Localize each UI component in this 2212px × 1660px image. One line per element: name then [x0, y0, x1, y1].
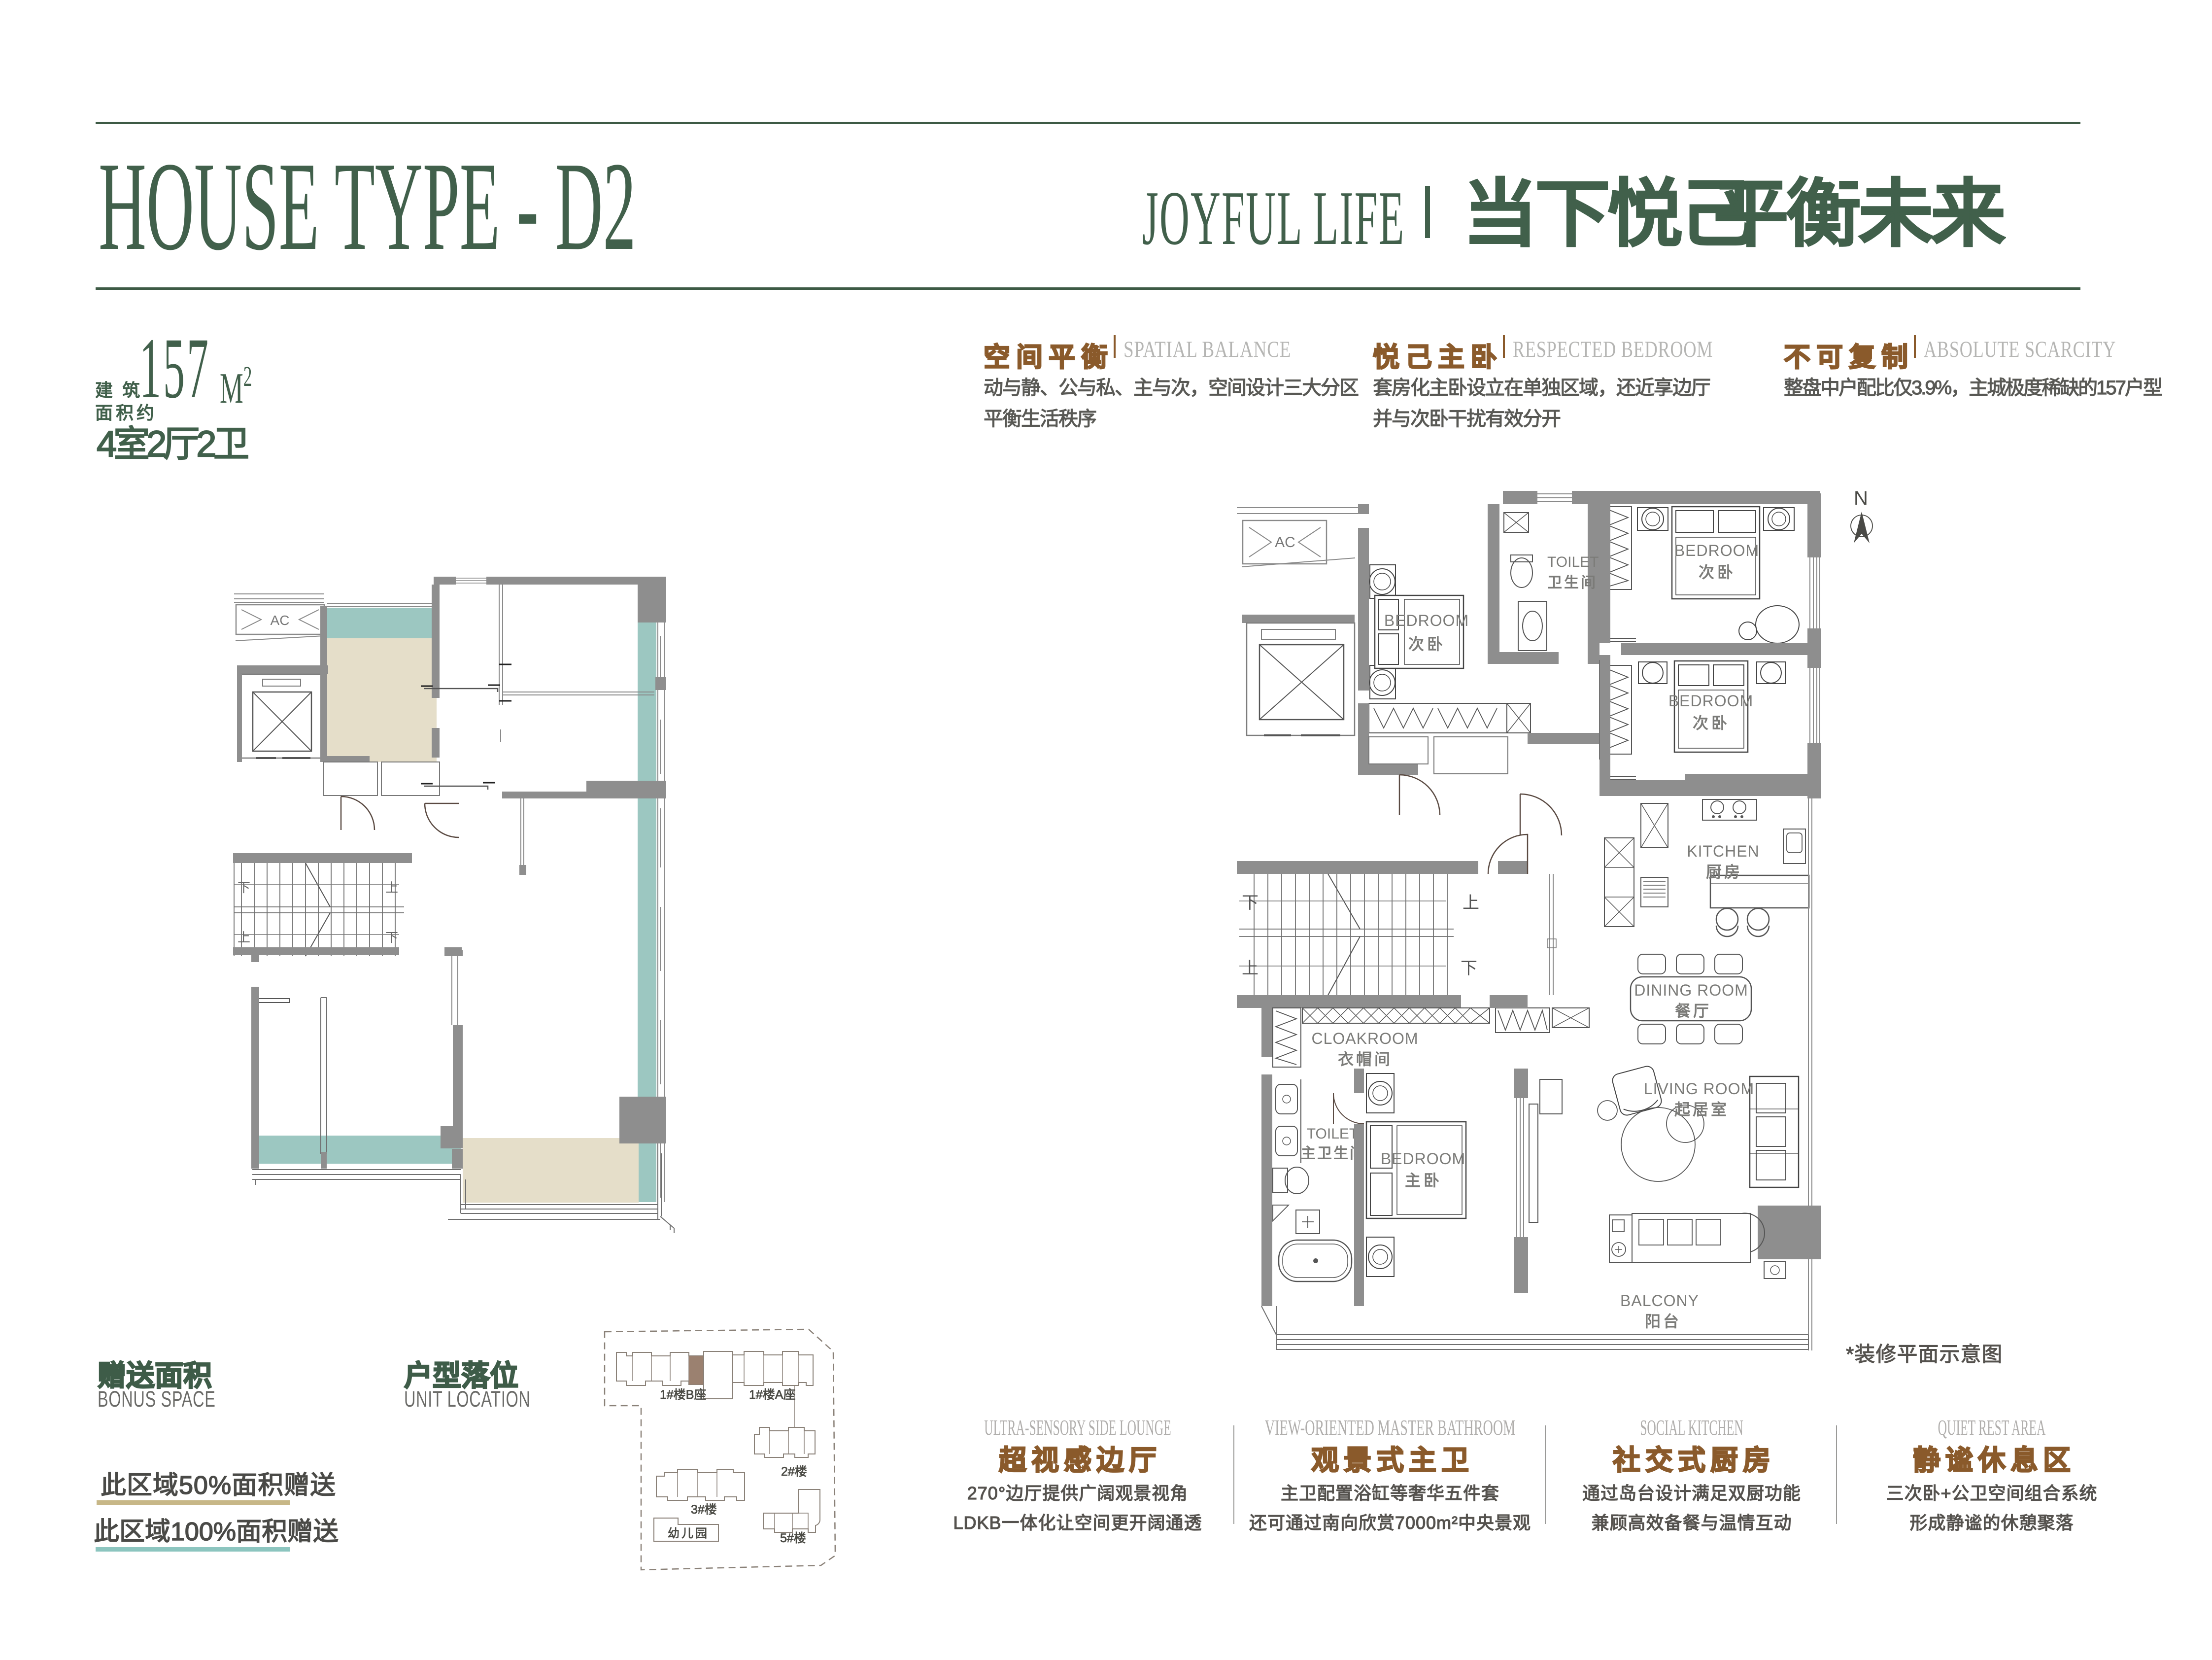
svg-text:1#楼B座: 1#楼B座 [660, 1388, 706, 1402]
svg-text:次卧: 次卧 [1693, 714, 1730, 732]
svg-text:LIVING ROOM: LIVING ROOM [1644, 1080, 1754, 1098]
svg-text:1#楼A座: 1#楼A座 [749, 1388, 795, 1402]
svg-text:CLOAKROOM: CLOAKROOM [1311, 1030, 1418, 1047]
svg-text:DINING ROOM: DINING ROOM [1634, 981, 1748, 999]
svg-text:上: 上 [1242, 959, 1259, 978]
svg-text:下: 下 [238, 880, 250, 895]
svg-text:厨房: 厨房 [1706, 863, 1742, 881]
svg-text:次卧: 次卧 [1699, 563, 1736, 581]
svg-text:下: 下 [1242, 894, 1259, 912]
svg-text:BALCONY: BALCONY [1620, 1292, 1699, 1310]
svg-text:TOILET: TOILET [1547, 554, 1599, 570]
svg-text:卫生间: 卫生间 [1547, 575, 1598, 591]
svg-text:上: 上 [238, 930, 250, 945]
svg-text:BEDROOM: BEDROOM [1381, 1150, 1465, 1168]
svg-text:N: N [1854, 487, 1868, 509]
svg-text:餐厅: 餐厅 [1675, 1002, 1711, 1020]
svg-text:5#楼: 5#楼 [780, 1531, 806, 1545]
svg-text:TOILET: TOILET [1307, 1126, 1358, 1142]
svg-text:AC: AC [1275, 534, 1295, 551]
svg-text:阳台: 阳台 [1645, 1313, 1681, 1330]
svg-text:起居室: 起居室 [1674, 1101, 1729, 1118]
svg-text:下: 下 [385, 930, 398, 945]
svg-text:幼儿园: 幼儿园 [668, 1527, 709, 1540]
svg-text:BEDROOM: BEDROOM [1668, 692, 1753, 710]
svg-text:主卧: 主卧 [1405, 1172, 1442, 1189]
svg-text:上: 上 [385, 880, 398, 895]
svg-text:KITCHEN: KITCHEN [1687, 842, 1759, 860]
svg-text:下: 下 [1461, 959, 1477, 978]
svg-text:次卧: 次卧 [1408, 635, 1446, 653]
svg-text:3#楼: 3#楼 [691, 1503, 717, 1517]
svg-text:BEDROOM: BEDROOM [1384, 612, 1469, 629]
svg-text:2#楼: 2#楼 [781, 1465, 807, 1479]
svg-text:衣帽间: 衣帽间 [1338, 1050, 1393, 1068]
svg-text:AC: AC [271, 613, 290, 628]
svg-text:BEDROOM: BEDROOM [1674, 542, 1759, 559]
svg-text:上: 上 [1463, 894, 1479, 912]
